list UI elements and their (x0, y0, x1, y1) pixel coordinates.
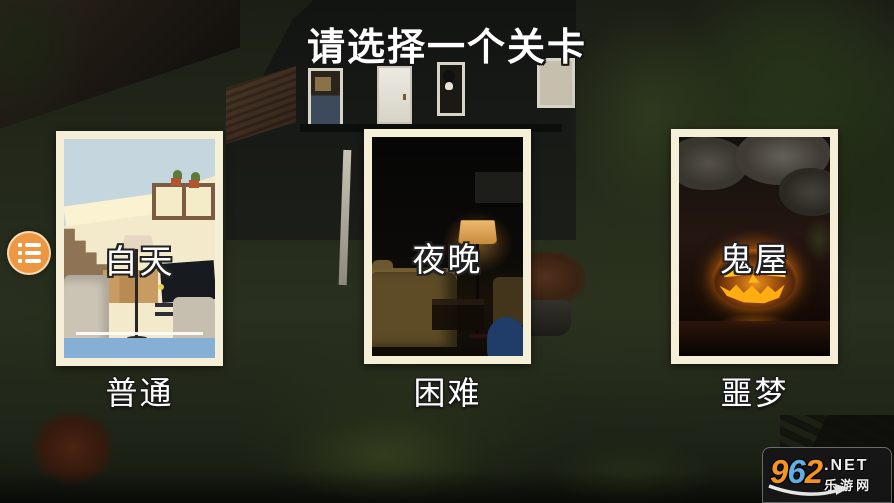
difficulty-label-normal: 普通 (56, 368, 223, 414)
level-name-label: 白天 (64, 235, 215, 283)
day-plants (173, 170, 182, 179)
watermark-tld: .NET (824, 458, 868, 474)
night-beanbag (487, 317, 523, 356)
list-row (18, 251, 41, 255)
level-thumbnail-night: 夜晚 (372, 137, 523, 356)
list-row (18, 243, 41, 247)
watermark-logo: 962 .NET 乐游网 (762, 447, 892, 503)
swoosh-arrow-icon (767, 483, 853, 499)
night-shelf (432, 299, 483, 330)
haunted-ground-ledge (679, 321, 830, 356)
day-loft-window (152, 183, 215, 220)
night-window (475, 172, 523, 203)
haunted-rock-right (779, 168, 830, 216)
level-thumbnail-haunted: 鬼屋 (679, 137, 830, 356)
level-card-night[interactable]: 夜晚 (364, 129, 531, 364)
day-rug (64, 338, 215, 358)
level-name-label: 鬼屋 (679, 233, 830, 281)
level-card-day[interactable]: 白天 (56, 131, 223, 366)
house-door (377, 66, 412, 124)
day-yellow-ball (158, 284, 164, 290)
background-ground-shadow (0, 470, 894, 503)
difficulty-label-hard: 困难 (364, 368, 531, 414)
day-plant-pots (171, 178, 181, 186)
level-select-screen: 请选择一个关卡 白天 普 (0, 0, 894, 503)
list-menu-icon (18, 243, 41, 263)
day-table-edge (76, 332, 203, 335)
house-window-left (308, 68, 343, 128)
difficulty-label-nightmare: 噩梦 (671, 368, 838, 414)
list-row (18, 259, 41, 263)
level-thumbnail-day: 白天 (64, 139, 215, 358)
level-list-button[interactable] (7, 231, 51, 275)
level-card-haunted[interactable]: 鬼屋 (671, 129, 838, 364)
page-title: 请选择一个关卡 (0, 16, 894, 71)
level-name-label: 夜晚 (372, 233, 523, 281)
